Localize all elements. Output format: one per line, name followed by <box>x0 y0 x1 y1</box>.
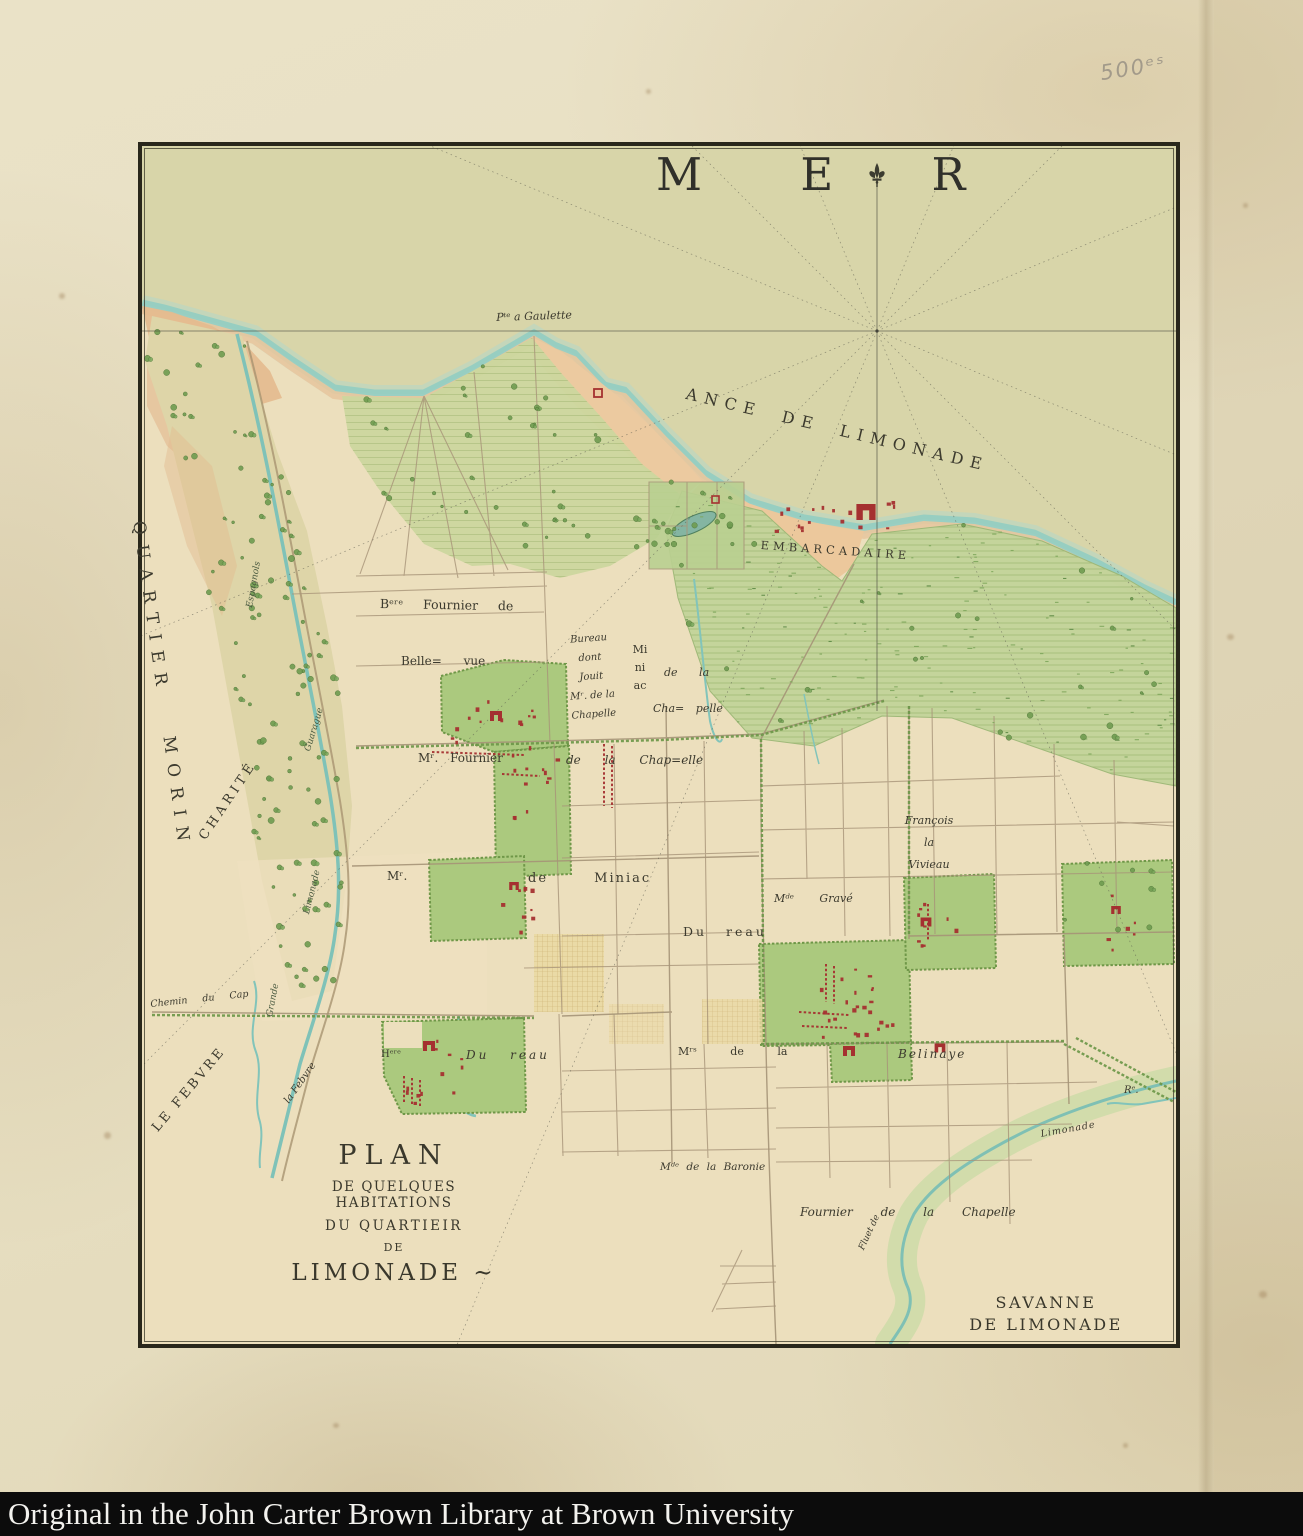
label-dureau-west: Du reau <box>466 1049 550 1061</box>
hatch-parcel <box>702 999 764 1044</box>
label-mde-de-la-baronie: Mᵈᵉ de la Baronie <box>660 1162 765 1173</box>
hatch-parcel <box>534 934 604 1012</box>
foxing-spot <box>333 1423 339 1428</box>
label-de-la: de la <box>664 667 709 678</box>
label-re: Rᵉ. <box>1124 1086 1139 1096</box>
pencil-annotation: 500ᵉˢ <box>1099 51 1169 85</box>
title-line-1: PLAN <box>288 1140 500 1171</box>
label-miniac-vertical: Mi ni ac <box>627 641 653 695</box>
title-line-3: DU QUARTIEIR <box>288 1218 500 1234</box>
label-francois-la-vivieau: François la Vivieau <box>898 810 960 876</box>
label-mr: Mʳ. <box>387 870 407 882</box>
label-cha-pelle: Cha= pelle <box>653 703 723 714</box>
foxing-spot <box>646 89 651 94</box>
foxing-spot <box>104 1132 111 1139</box>
library-caption-bar: Original in the John Carter Brown Librar… <box>0 1492 1303 1536</box>
hatch-parcel <box>609 1004 664 1044</box>
label-belinaye: Belinaye <box>898 1048 966 1060</box>
label-belle-vue: Belle= vue <box>401 655 485 667</box>
title-line-2: DE QUELQUES HABITATIONS <box>288 1179 500 1211</box>
label-mer: M E R <box>656 152 1007 197</box>
title-line-4: DE <box>288 1241 500 1254</box>
foxing-spot <box>1123 1443 1128 1448</box>
backing-paper <box>1214 0 1303 1536</box>
label-heritiers: Hᵉʳᵉ <box>381 1050 401 1060</box>
label-savanne-de-limonade: SAVANNE DE LIMONADE <box>958 1292 1134 1336</box>
label-mr-fournier: Mʳ. Fournier <box>418 752 503 764</box>
sheet-edge <box>1198 0 1214 1536</box>
label-mrs-de-la: Mʳˢ de la <box>678 1046 787 1057</box>
label-bere-fournier-de: Bᵉʳᵉ Fournier de <box>380 598 514 613</box>
title-line-5: LIMONADE ~ <box>288 1260 500 1286</box>
foxing-spot <box>59 293 65 299</box>
label-de-miniac: de Miniac <box>528 872 651 885</box>
compass-center <box>875 329 878 332</box>
label-mde-grave: Mᵈᵉ Gravé <box>774 893 853 904</box>
block-notch <box>384 1022 422 1048</box>
label-bureau-dont-jouit: Bureau dont Jouit Mʳ. de la Chapelle <box>551 627 631 727</box>
label-fournier-de-la-chapelle: Fournier de la Chapelle <box>800 1206 1016 1218</box>
title-cartouche: PLAN DE QUELQUES HABITATIONS DU QUARTIEI… <box>288 1140 500 1286</box>
label-pte-a-gaulette: Pᵗᵉ a Gaulette <box>496 309 572 323</box>
label-de-la-chapelle: de la Chap=elle <box>566 754 703 766</box>
scanned-map-page: 500ᵉˢ <box>0 0 1303 1536</box>
label-dureau-east: Du reau <box>683 926 767 939</box>
